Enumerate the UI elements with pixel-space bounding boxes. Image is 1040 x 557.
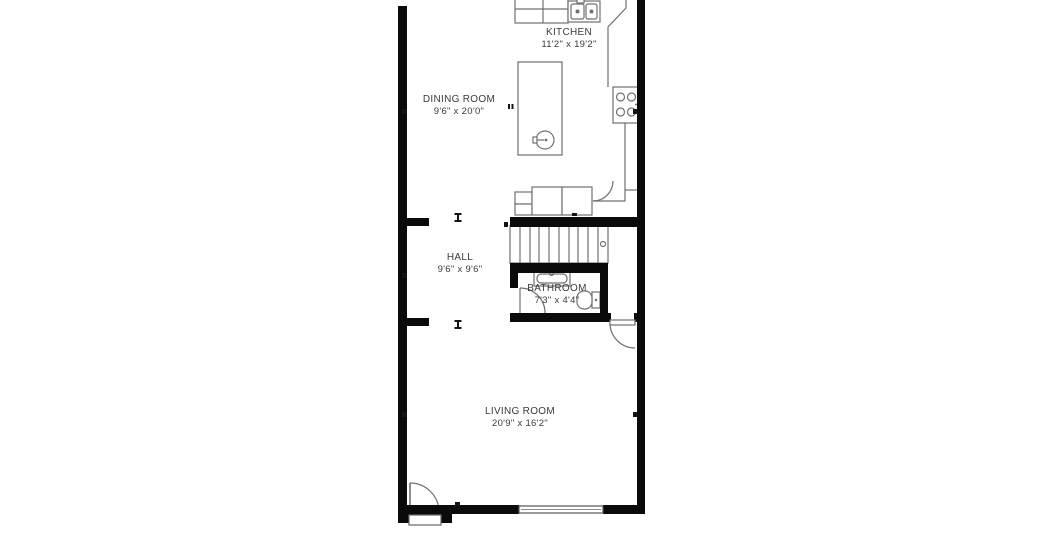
dimension-tick xyxy=(633,109,638,114)
dimension-tick xyxy=(402,273,407,278)
toilet-icon xyxy=(577,291,600,309)
kitchen-cabinets-icon xyxy=(515,0,568,23)
dimension-tick xyxy=(508,104,510,109)
dimension-tick xyxy=(402,109,407,114)
dimension-tick xyxy=(633,412,638,417)
bathroom-north-wall xyxy=(510,263,608,273)
hall-stub-lower-wall xyxy=(398,318,429,326)
left-wall xyxy=(398,6,407,523)
bathroom-west-wall xyxy=(510,263,518,288)
floorplan-canvas: KITCHEN 11'2" x 19'2" DINING ROOM 9'6" x… xyxy=(0,0,1040,557)
right-wall xyxy=(637,0,645,514)
stove-icon xyxy=(613,87,638,123)
living-room-door-arc xyxy=(610,323,635,348)
kitchen-door-arc xyxy=(593,181,613,201)
bathroom-door-arc xyxy=(520,288,545,313)
dimension-tick xyxy=(572,213,577,216)
bottom-wall-left xyxy=(448,505,519,514)
kitchen-appliances-icon xyxy=(515,187,592,215)
living-room-door-leaf xyxy=(610,320,635,325)
dimension-tick xyxy=(402,412,407,417)
kitchen-island xyxy=(518,62,562,155)
south-interior-wall-right xyxy=(634,313,645,322)
dimension-tick xyxy=(512,104,514,109)
dimension-tick xyxy=(504,222,508,227)
opening-marker xyxy=(455,320,462,329)
window-icon xyxy=(519,506,603,513)
kitchen-south-wall xyxy=(510,217,645,227)
bathroom-sink-icon xyxy=(534,271,570,286)
bottom-wall-right xyxy=(603,505,645,514)
entry-threshold xyxy=(409,515,441,525)
opening-marker xyxy=(455,213,462,222)
hall-stub-upper-wall xyxy=(398,218,429,226)
stairs-icon xyxy=(510,226,608,263)
floorplan-drawing xyxy=(0,0,1040,557)
kitchen-sink-icon xyxy=(568,0,600,22)
dimension-tick xyxy=(455,502,460,505)
south-interior-wall xyxy=(510,313,611,322)
